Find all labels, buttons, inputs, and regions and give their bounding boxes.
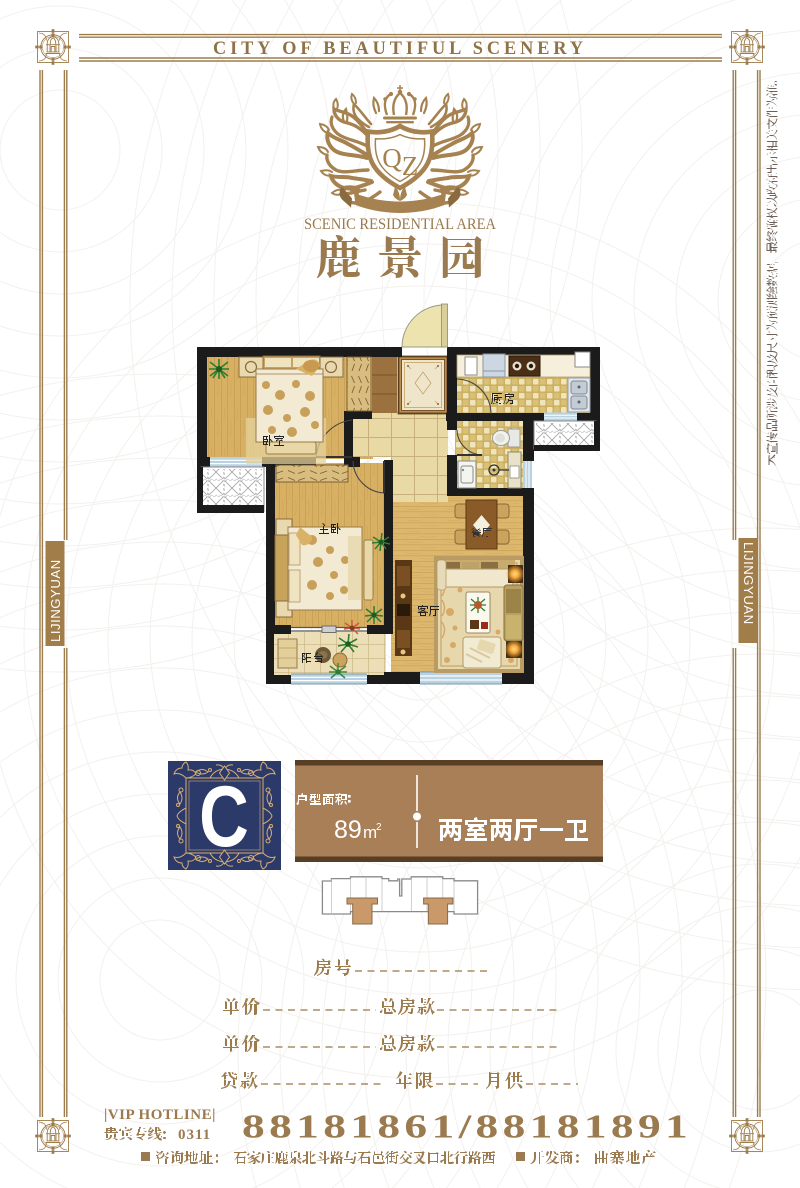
svg-text:CITY OF BEAUTIFUL SCENERY: CITY OF BEAUTIFUL SCENERY — [213, 39, 587, 59]
svg-text:Z: Z — [402, 151, 419, 181]
svg-text:Q: Q — [382, 143, 402, 173]
svg-text:SCENIC RESIDENTIAL AREA: SCENIC RESIDENTIAL AREA — [304, 216, 497, 233]
svg-text:LIJINGYUAN: LIJINGYUAN — [741, 542, 756, 625]
svg-text:C: C — [199, 769, 249, 865]
svg-text:88181861/88181891: 88181861/88181891 — [242, 1108, 692, 1145]
svg-text:LIJINGYUAN: LIJINGYUAN — [48, 559, 63, 642]
svg-text:2: 2 — [376, 822, 382, 833]
svg-text:0311: 0311 — [178, 1127, 211, 1143]
svg-text:|VIP HOTLINE|: |VIP HOTLINE| — [104, 1107, 216, 1123]
svg-text:89: 89 — [334, 816, 362, 844]
